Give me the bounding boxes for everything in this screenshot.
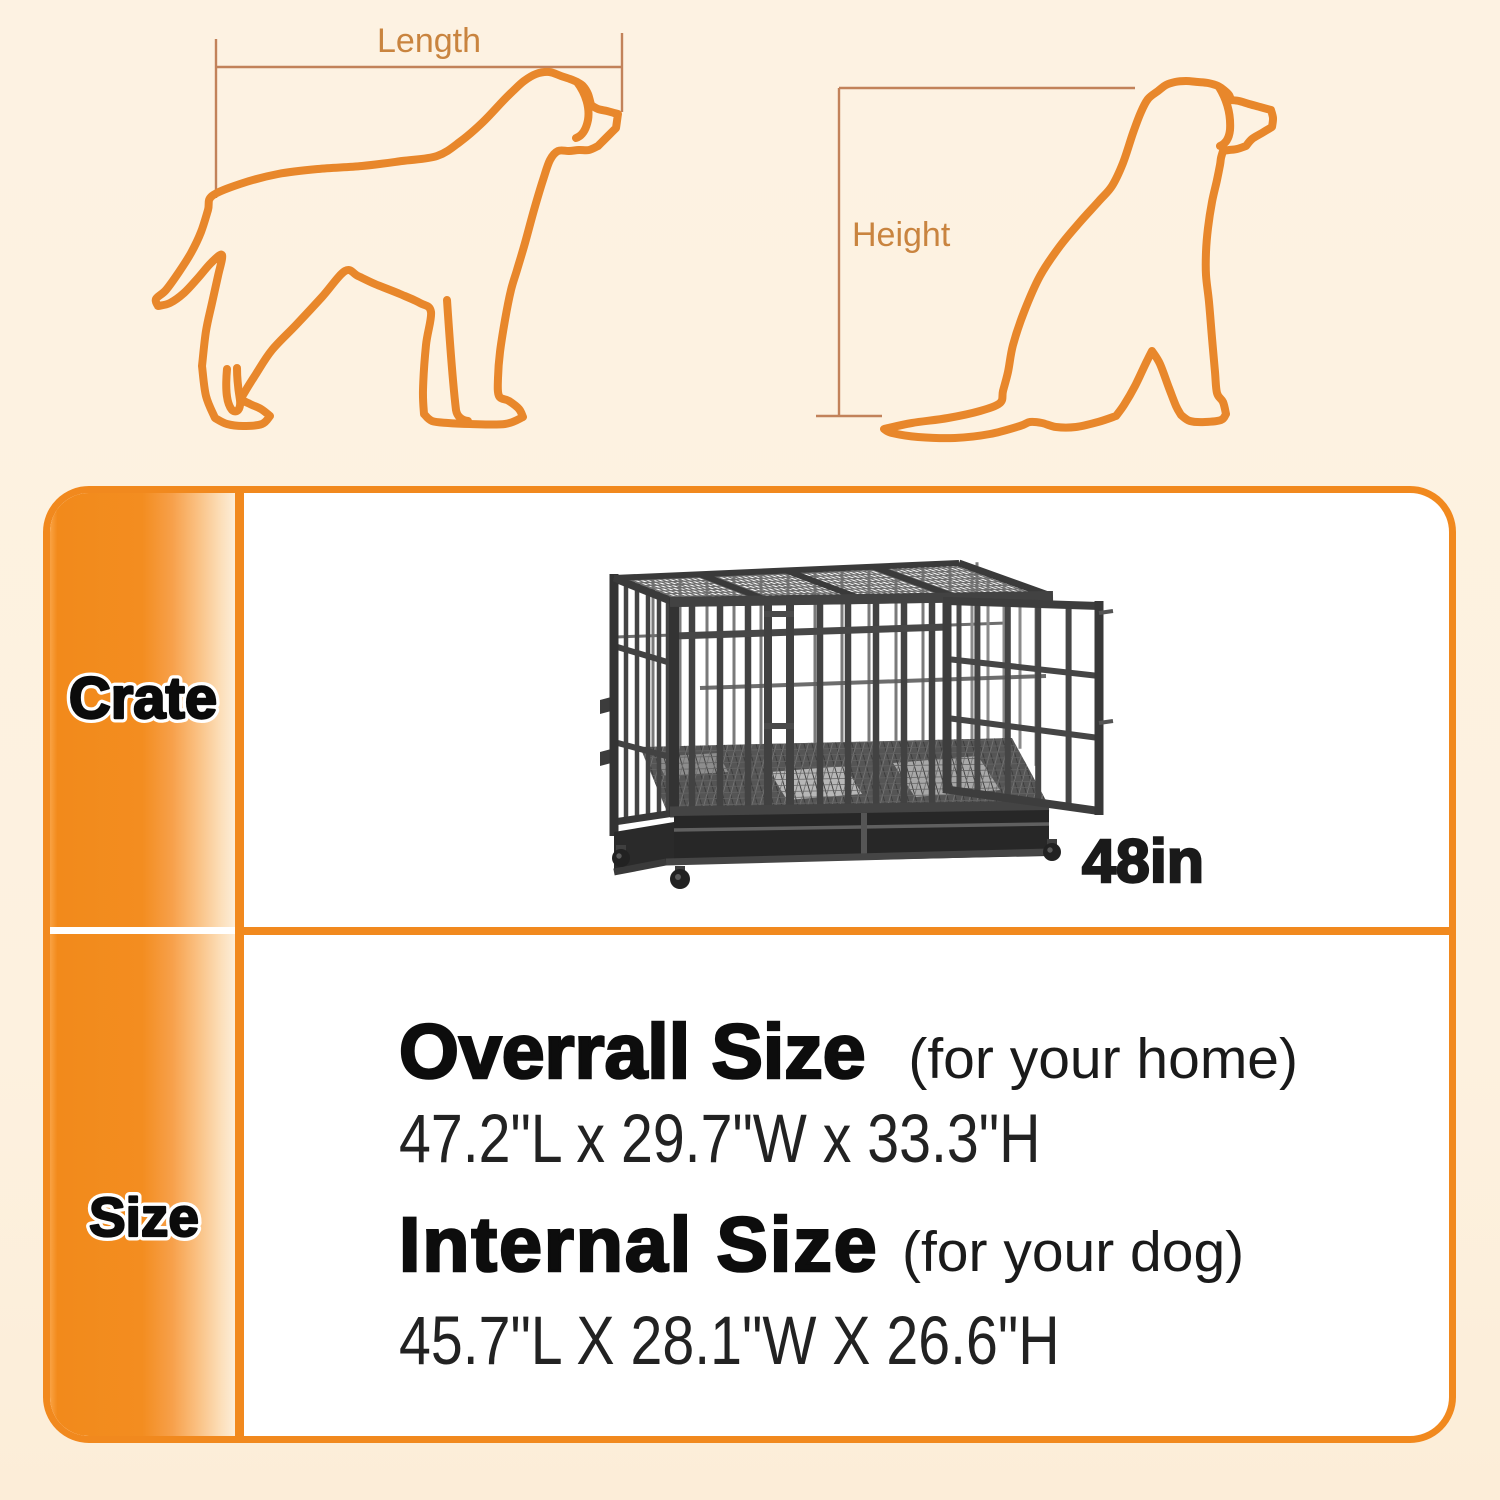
svg-text:Crate: Crate — [69, 666, 217, 731]
svg-text:Size: Size — [89, 1186, 199, 1248]
